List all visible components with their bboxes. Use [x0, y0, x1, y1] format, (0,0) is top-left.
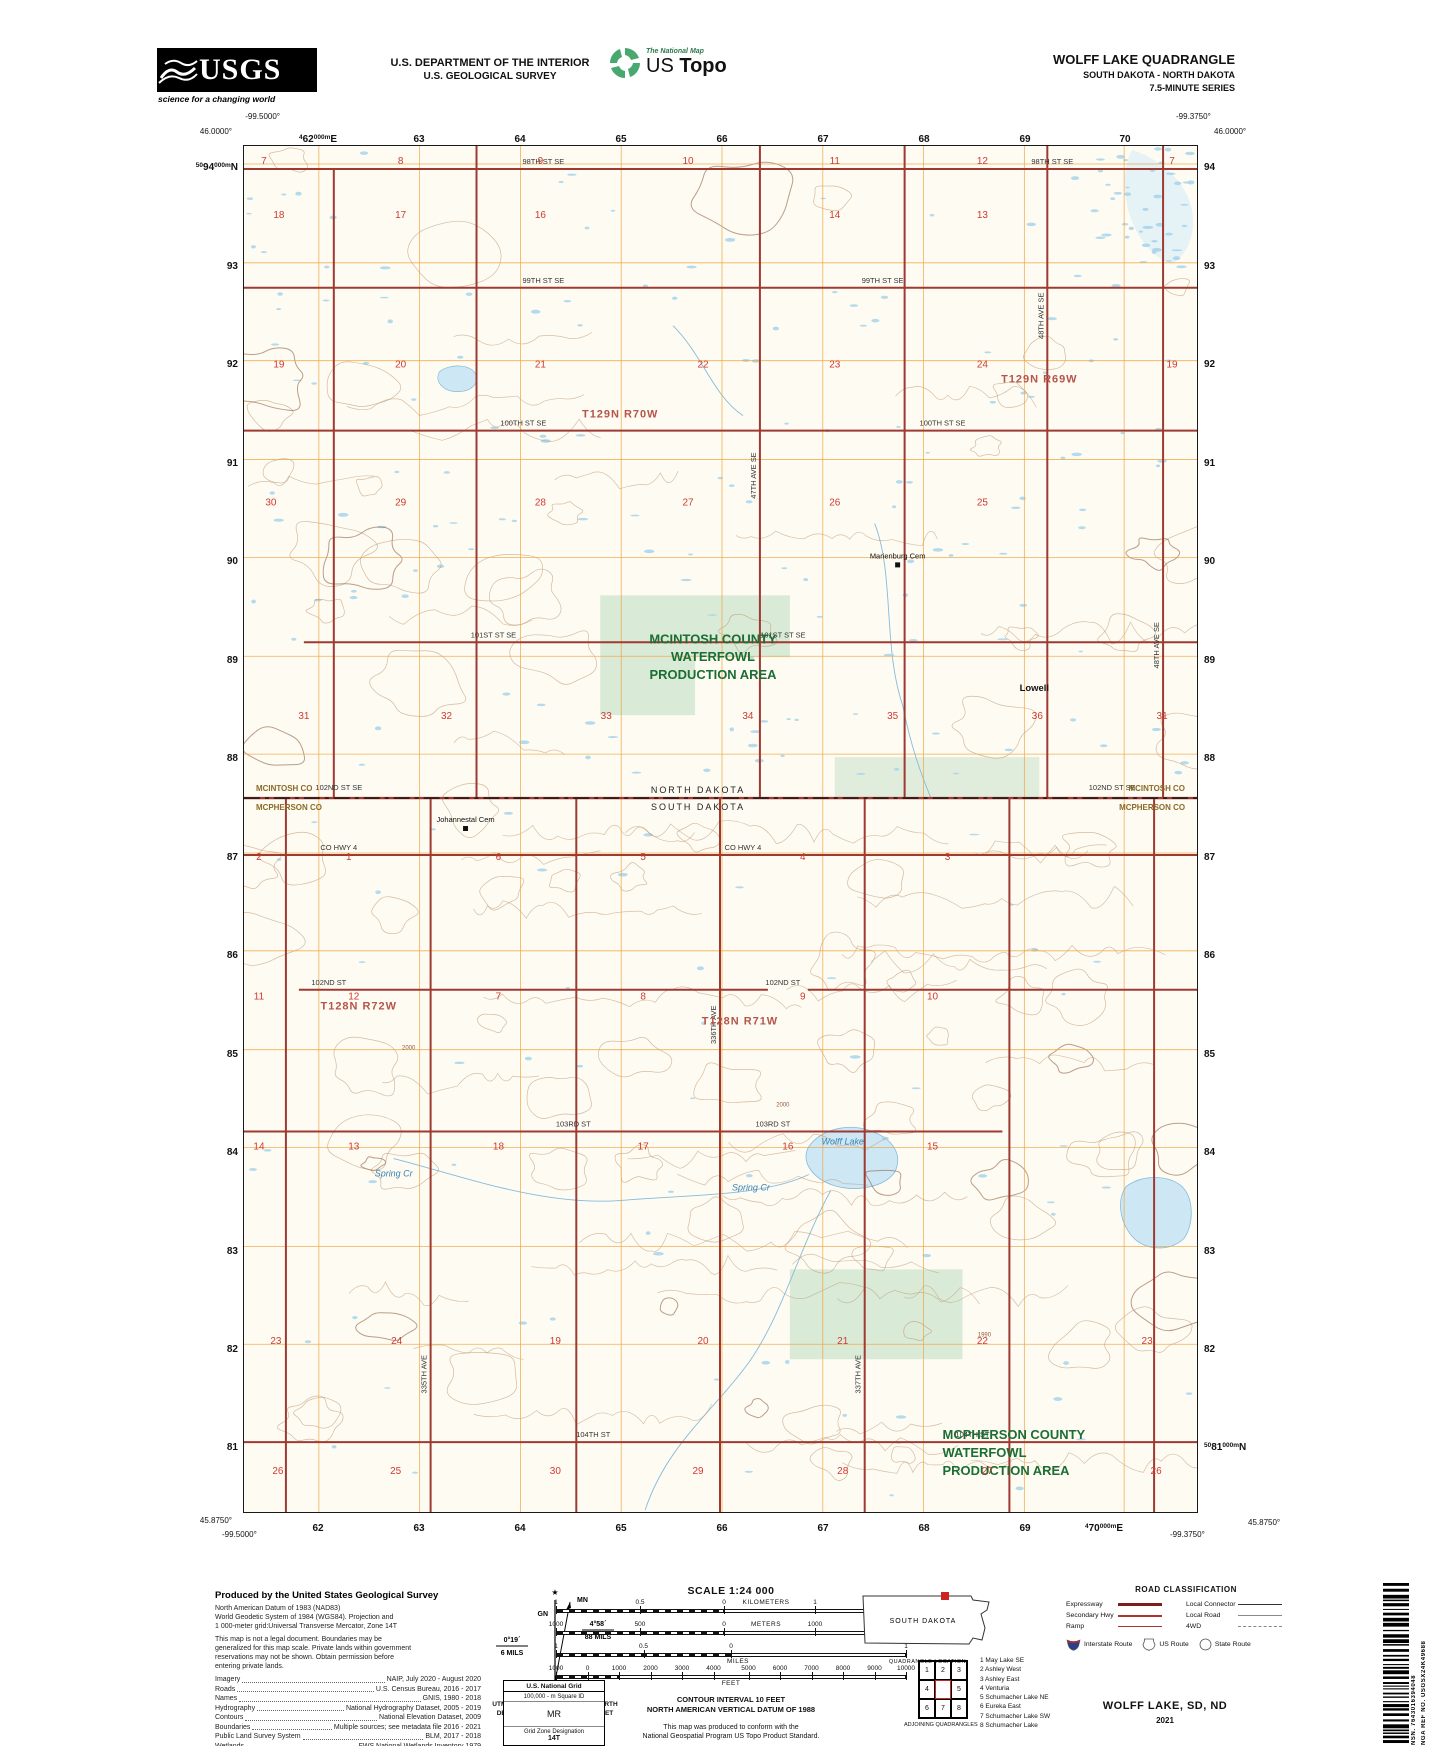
svg-text:6: 6 [496, 852, 502, 863]
produced-title: Produced by the United States Geological… [215, 1590, 481, 1601]
grid-label-bottom: 62 [312, 1518, 323, 1536]
svg-text:31: 31 [298, 711, 310, 722]
svg-text:T129N R70W: T129N R70W [582, 409, 658, 421]
barcode: NSN. 7643016394048 NGA REF NO. USGSX24K4… [1383, 1583, 1433, 1745]
shield-legend-item: Interstate Route [1066, 1638, 1132, 1651]
adjoining-caption: ADJOINING QUADRANGLES [904, 1722, 978, 1728]
svg-text:15: 15 [927, 1142, 939, 1153]
grid-label-bottom: 63 [413, 1518, 424, 1536]
adjoining-name: 6 Eureka East [980, 1702, 1100, 1711]
svg-text:MCPHERSON CO: MCPHERSON CO [256, 803, 322, 812]
barcode-nsn: NSN. 7643016394048 [1411, 1583, 1417, 1745]
adjoining-cell: 5 [951, 1680, 967, 1699]
svg-text:27: 27 [982, 1466, 994, 1477]
datum-line: North American Datum of 1983 (NAD83) [215, 1604, 481, 1613]
svg-text:7: 7 [496, 992, 502, 1003]
road-class-row: Local Connector [1186, 1599, 1306, 1610]
grid-label-right: 87 [1204, 847, 1215, 865]
svg-text:20: 20 [697, 1336, 709, 1347]
svg-text:48TH AVE SE: 48TH AVE SE [1152, 622, 1161, 668]
usgs-tagline: science for a changing world [158, 94, 275, 104]
svg-text:8: 8 [398, 156, 404, 167]
svg-text:29: 29 [395, 497, 407, 508]
svg-text:4: 4 [800, 852, 806, 863]
svg-text:103RD ST: 103RD ST [556, 1120, 591, 1129]
grid-label-bottom: 65 [615, 1518, 626, 1536]
svg-text:9: 9 [538, 156, 544, 167]
shield-legend-item: US Route [1142, 1638, 1188, 1651]
svg-text:29: 29 [693, 1466, 705, 1477]
svg-text:2000: 2000 [776, 1103, 790, 1109]
corner-top-left-lat: 46.0000° [152, 127, 232, 136]
grid-label-top: 68 [918, 129, 929, 147]
grid-label-bottom: 68 [918, 1518, 929, 1536]
adjoining-name: 2 Ashley West [980, 1665, 1100, 1674]
interstate-shield-icon [1066, 1638, 1081, 1651]
adjoining-cell: 4 [919, 1680, 935, 1699]
svg-text:10: 10 [927, 992, 939, 1003]
road-class-row: Expressway [1066, 1599, 1186, 1610]
adjoining-name: 1 May Lake SE [980, 1656, 1100, 1665]
credit-row: WetlandsFWS National Wetlands Inventory … [215, 1742, 481, 1746]
grid-label-bottom: 69 [1019, 1518, 1030, 1536]
svg-text:SOUTH DAKOTA: SOUTH DAKOTA [889, 1618, 956, 1625]
grid-label-bottom: 67 [817, 1518, 828, 1536]
legal-line: This map is not a legal document. Bounda… [215, 1635, 481, 1644]
data-source-credits: ImageryNAIP, July 2020 - August 2020Road… [215, 1675, 481, 1746]
svg-text:337TH AVE: 337TH AVE [854, 1355, 863, 1393]
production-credits: Produced by the United States Geological… [215, 1590, 481, 1746]
grid-label-top: 65 [615, 129, 626, 147]
road-network [244, 146, 1197, 1512]
svg-text:14: 14 [253, 1142, 265, 1153]
corner-bottom-left-lon: -99.5000° [222, 1530, 257, 1539]
grid-label-bottom: 470000mE [1085, 1518, 1123, 1536]
svg-text:99TH ST SE: 99TH ST SE [862, 276, 904, 285]
svg-text:NORTH DAKOTA: NORTH DAKOTA [651, 785, 745, 795]
adjoining-name: 8 Schumacher Lake [980, 1721, 1100, 1730]
sheet-title-block: WOLFF LAKE, SD, ND 2021 [1085, 1700, 1245, 1725]
adjoining-cell: 1 [919, 1661, 935, 1680]
svg-text:18: 18 [273, 210, 285, 221]
svg-text:MCPHERSON COUNTY: MCPHERSON COUNTY [943, 1427, 1086, 1442]
svg-text:Johannestal Cem: Johannestal Cem [436, 815, 494, 824]
legal-line: generalized for this map scale. Private … [215, 1644, 481, 1653]
legal-line: entering private lands. [215, 1662, 481, 1671]
sheet-year: 2021 [1085, 1716, 1245, 1725]
svg-text:Spring Cr: Spring Cr [375, 1168, 414, 1178]
svg-text:PRODUCTION AREA: PRODUCTION AREA [650, 667, 778, 682]
svg-text:11: 11 [254, 992, 265, 1003]
svg-text:Lowell: Lowell [1020, 683, 1049, 694]
adjoining-cell: 7 [935, 1699, 951, 1718]
grid-label-right: 88 [1204, 748, 1215, 766]
svg-text:17: 17 [395, 210, 407, 221]
svg-text:0°19´: 0°19´ [504, 1636, 521, 1644]
svg-text:7: 7 [1169, 156, 1175, 167]
route-shield-legend: Interstate RouteUS RouteState Route [1066, 1638, 1306, 1651]
road-class-row: Ramp [1066, 1621, 1186, 1632]
road-class-right-column: Local ConnectorLocal Road4WD [1186, 1599, 1306, 1632]
svg-text:100TH ST SE: 100TH ST SE [920, 419, 966, 428]
grid-label-left: 82 [150, 1339, 238, 1357]
svg-text:CO HWY 4: CO HWY 4 [320, 843, 357, 852]
svg-text:32: 32 [441, 711, 453, 722]
svg-text:100TH ST SE: 100TH ST SE [500, 419, 546, 428]
grid-label-left: 87 [150, 847, 238, 865]
grid-label-right: 92 [1204, 354, 1215, 372]
adjoining-quadrangles: 12345678 1 May Lake SE2 Ashley West3 Ash… [918, 1660, 968, 1719]
grid-label-left: 5094000mN [150, 157, 238, 175]
svg-text:31: 31 [1157, 711, 1169, 722]
grid-label-right: 94 [1204, 157, 1215, 175]
credit-row: ImageryNAIP, July 2020 - August 2020 [215, 1675, 481, 1685]
svg-text:101ST ST SE: 101ST ST SE [471, 630, 516, 639]
adjoining-grid: 12345678 [918, 1660, 968, 1719]
road-class-title: ROAD CLASSIFICATION [1066, 1585, 1306, 1594]
svg-text:2000: 2000 [402, 1046, 416, 1052]
svg-text:5: 5 [640, 852, 646, 863]
adjoining-names: 1 May Lake SE2 Ashley West3 Ashley East4… [980, 1656, 1100, 1730]
adjoining-name: 5 Schumacher Lake NE [980, 1693, 1100, 1702]
svg-text:102ND ST: 102ND ST [311, 978, 346, 987]
svg-text:MCINTOSH CO: MCINTOSH CO [1129, 784, 1186, 793]
svg-text:30: 30 [550, 1466, 562, 1477]
grid-label-right: 90 [1204, 551, 1215, 569]
credit-row: NamesGNIS, 1980 - 2018 [215, 1694, 481, 1704]
svg-text:23: 23 [270, 1336, 282, 1347]
legal-line: reservations may not be shown. Obtain pe… [215, 1653, 481, 1662]
corner-top-right-lon: -99.3750° [1176, 112, 1211, 121]
svg-text:22: 22 [977, 1336, 989, 1347]
svg-text:47TH AVE SE: 47TH AVE SE [749, 452, 758, 498]
svg-text:24: 24 [977, 360, 989, 371]
usgs-wave-icon [157, 52, 199, 88]
quad-states: SOUTH DAKOTA - NORTH DAKOTA [905, 70, 1235, 80]
svg-text:MCINTOSH COUNTY: MCINTOSH COUNTY [649, 631, 777, 646]
svg-text:WATERFOWL: WATERFOWL [671, 649, 755, 664]
svg-text:12: 12 [348, 992, 360, 1003]
shield-legend-item: State Route [1199, 1638, 1251, 1651]
svg-text:33: 33 [601, 711, 613, 722]
corner-top-left-lon: -99.5000° [195, 112, 280, 121]
grid-label-top: 69 [1019, 129, 1030, 147]
corner-bottom-left-lat: 45.8750° [152, 1516, 232, 1525]
svg-text:19: 19 [273, 360, 285, 371]
adjoining-cell-current [935, 1680, 951, 1699]
svg-text:23: 23 [829, 360, 841, 371]
dept-line2: U.S. GEOLOGICAL SURVEY [345, 71, 635, 82]
conformance-note: This map was produced to conform with th… [556, 1723, 906, 1741]
svg-text:17: 17 [638, 1142, 650, 1153]
svg-text:16: 16 [782, 1142, 794, 1153]
adjoining-cell: 8 [951, 1699, 967, 1718]
datum-line: 1 000-meter grid:Universal Transverse Me… [215, 1622, 481, 1631]
state-route-circle-icon [1199, 1638, 1212, 1651]
svg-text:102ND ST SE: 102ND ST SE [315, 783, 362, 792]
south-dakota-outline: SOUTH DAKOTA [853, 1588, 1003, 1650]
svg-text:99TH ST SE: 99TH ST SE [522, 276, 564, 285]
grid-label-right: 85 [1204, 1044, 1215, 1062]
svg-text:26: 26 [272, 1466, 284, 1477]
usgs-topo-sheet: USGS science for a changing world U.S. D… [0, 0, 1445, 1746]
grid-label-right: 5081000mN [1204, 1437, 1246, 1455]
barcode-stripes [1383, 1583, 1409, 1745]
svg-text:3: 3 [945, 852, 951, 863]
svg-text:Marienburg Cem: Marienburg Cem [870, 551, 926, 560]
svg-text:28: 28 [837, 1466, 849, 1477]
corner-bottom-right-lat: 45.8750° [1248, 1518, 1280, 1527]
svg-text:335TH AVE: 335TH AVE [420, 1355, 429, 1393]
svg-text:18: 18 [493, 1142, 505, 1153]
grid-label-right: 86 [1204, 945, 1215, 963]
grid-label-right: 93 [1204, 256, 1215, 274]
grid-label-left: 93 [150, 256, 238, 274]
svg-text:MCINTOSH CO: MCINTOSH CO [256, 784, 313, 793]
topo-map-canvas: 98TH ST SE98TH ST SE99TH ST SE99TH ST SE… [244, 146, 1197, 1512]
adjoining-cell: 2 [935, 1661, 951, 1680]
grid-label-top: 63 [413, 129, 424, 147]
svg-text:104TH ST: 104TH ST [576, 1430, 610, 1439]
grid-label-left: 84 [150, 1142, 238, 1160]
svg-text:SOUTH DAKOTA: SOUTH DAKOTA [651, 802, 745, 812]
credit-row: ContoursNational Elevation Dataset, 2009 [215, 1713, 481, 1723]
scale-bar-feet: 1000010002000300040005000600070008000900… [556, 1664, 906, 1685]
grid-label-top: 64 [514, 129, 525, 147]
svg-text:14: 14 [829, 210, 841, 221]
svg-text:48TH AVE SE: 48TH AVE SE [1036, 293, 1045, 339]
svg-text:13: 13 [348, 1142, 360, 1153]
datum-line: World Geodetic System of 1984 (WGS84). P… [215, 1613, 481, 1622]
grid-label-left: 85 [150, 1044, 238, 1062]
svg-text:98TH ST SE: 98TH ST SE [1031, 157, 1073, 166]
adjoining-name: 3 Ashley East [980, 1675, 1100, 1684]
svg-text:13: 13 [977, 210, 989, 221]
svg-text:27: 27 [683, 497, 695, 508]
credit-row: Public Land Survey SystemBLM, 2017 - 201… [215, 1732, 481, 1742]
svg-text:PRODUCTION AREA: PRODUCTION AREA [943, 1463, 1071, 1478]
svg-text:98TH ST SE: 98TH ST SE [522, 157, 564, 166]
grid-label-right: 89 [1204, 650, 1215, 668]
grid-label-top: 462000mE [299, 129, 337, 147]
department-heading: U.S. DEPARTMENT OF THE INTERIOR U.S. GEO… [345, 57, 635, 82]
barcode-nga-ref: NGA REF NO. USGSX24K49688 [1421, 1583, 1427, 1745]
credit-row: RoadsU.S. Census Bureau, 2016 - 2017 [215, 1685, 481, 1695]
map-body: 98TH ST SE98TH ST SE99TH ST SE99TH ST SE… [243, 145, 1198, 1513]
grid-label-left: 86 [150, 945, 238, 963]
svg-text:24: 24 [391, 1336, 403, 1347]
grid-label-right: 83 [1204, 1241, 1215, 1259]
svg-text:11: 11 [830, 156, 841, 167]
national-map-icon [608, 46, 642, 80]
svg-text:2: 2 [256, 852, 262, 863]
dept-line1: U.S. DEPARTMENT OF THE INTERIOR [345, 57, 635, 69]
credit-row: HydrographyNational Hydrography Dataset,… [215, 1704, 481, 1714]
grid-label-top: 66 [716, 129, 727, 147]
svg-text:28: 28 [535, 497, 547, 508]
ustopo-label: US Topo [646, 55, 727, 78]
svg-text:Spring Cr: Spring Cr [732, 1182, 771, 1192]
svg-text:CO HWY 4: CO HWY 4 [725, 843, 762, 852]
svg-text:8: 8 [640, 992, 646, 1003]
svg-text:35: 35 [887, 711, 899, 722]
svg-text:19: 19 [1167, 360, 1179, 371]
grid-label-top: 70 [1119, 129, 1130, 147]
svg-text:103RD ST: 103RD ST [755, 1120, 790, 1129]
svg-text:34: 34 [742, 711, 754, 722]
svg-text:10: 10 [683, 156, 695, 167]
svg-text:1: 1 [346, 852, 352, 863]
svg-text:T128N R71W: T128N R71W [702, 1016, 778, 1028]
road-class-row: Local Road [1186, 1610, 1306, 1621]
state-locator: SOUTH DAKOTA QUADRANGLE LOCATION [845, 1588, 1010, 1665]
national-map-label: The National Map [646, 48, 727, 55]
adjoining-cell: 3 [951, 1661, 967, 1680]
usgs-logo: USGS [157, 48, 317, 92]
svg-text:19: 19 [550, 1336, 562, 1347]
quadrangle-heading: WOLFF LAKE QUADRANGLE SOUTH DAKOTA - NOR… [905, 52, 1235, 93]
quad-series: 7.5-MINUTE SERIES [905, 83, 1235, 93]
svg-text:MCPHERSON CO: MCPHERSON CO [1119, 803, 1185, 812]
svg-text:22: 22 [697, 360, 709, 371]
grid-label-right: 82 [1204, 1339, 1215, 1357]
wpa-green-areas [600, 595, 1039, 1359]
road-class-row: Secondary Hwy [1066, 1610, 1186, 1621]
grid-label-left: 90 [150, 551, 238, 569]
svg-text:6 MILS: 6 MILS [501, 1650, 524, 1657]
svg-text:7: 7 [261, 156, 267, 167]
grid-label-top: 67 [817, 129, 828, 147]
grid-label-right: 84 [1204, 1142, 1215, 1160]
svg-text:T129N R69W: T129N R69W [1001, 374, 1077, 386]
grid-label-bottom: 66 [716, 1518, 727, 1536]
grid-label-left: 92 [150, 354, 238, 372]
usgs-wordmark: USGS [199, 53, 281, 87]
svg-text:30: 30 [265, 497, 277, 508]
svg-text:21: 21 [837, 1336, 849, 1347]
grid-label-left: 89 [150, 650, 238, 668]
grid-label-left: 88 [150, 748, 238, 766]
svg-text:9: 9 [800, 992, 806, 1003]
grid-label-left: 91 [150, 453, 238, 471]
road-classification: ROAD CLASSIFICATION ExpresswaySecondary … [1066, 1585, 1306, 1651]
adjoining-name: 7 Schumacher Lake SW [980, 1712, 1100, 1721]
grid-label-left: 83 [150, 1241, 238, 1259]
svg-text:Wolff Lake: Wolff Lake [822, 1137, 864, 1147]
grid-label-right: 91 [1204, 453, 1215, 471]
svg-text:25: 25 [390, 1466, 402, 1477]
svg-text:WATERFOWL: WATERFOWL [943, 1445, 1027, 1460]
svg-text:20: 20 [395, 360, 407, 371]
svg-text:GN: GN [538, 1611, 549, 1618]
svg-text:102ND ST: 102ND ST [765, 978, 800, 987]
svg-text:21: 21 [535, 360, 547, 371]
sheet-name: WOLFF LAKE, SD, ND [1085, 1700, 1245, 1712]
svg-text:12: 12 [977, 156, 989, 167]
us-route-shield-icon [1142, 1638, 1156, 1651]
quad-location-marker [941, 1592, 949, 1600]
svg-text:26: 26 [829, 497, 841, 508]
svg-text:36: 36 [1032, 711, 1044, 722]
grid-label-bottom: 64 [514, 1518, 525, 1536]
svg-text:16: 16 [535, 210, 547, 221]
corner-bottom-right-lon: -99.3750° [1170, 1530, 1205, 1539]
svg-text:25: 25 [977, 497, 989, 508]
adjoining-cell: 6 [919, 1699, 935, 1718]
road-class-left-column: ExpresswaySecondary HwyRamp [1066, 1599, 1186, 1632]
quad-title: WOLFF LAKE QUADRANGLE [905, 52, 1235, 67]
svg-text:26: 26 [1151, 1466, 1163, 1477]
grid-label-left: 81 [150, 1437, 238, 1455]
road-class-row: 4WD [1186, 1621, 1306, 1632]
adjoining-name: 4 Venturia [980, 1684, 1100, 1693]
ustopo-logo: The National Map US Topo [608, 46, 727, 80]
credit-row: BoundariesMultiple sources; see metadata… [215, 1723, 481, 1733]
contour-interval-notes: CONTOUR INTERVAL 10 FEET NORTH AMERICAN … [556, 1695, 906, 1715]
svg-text:23: 23 [1142, 1336, 1154, 1347]
corner-top-right-lat: 46.0000° [1214, 127, 1246, 136]
